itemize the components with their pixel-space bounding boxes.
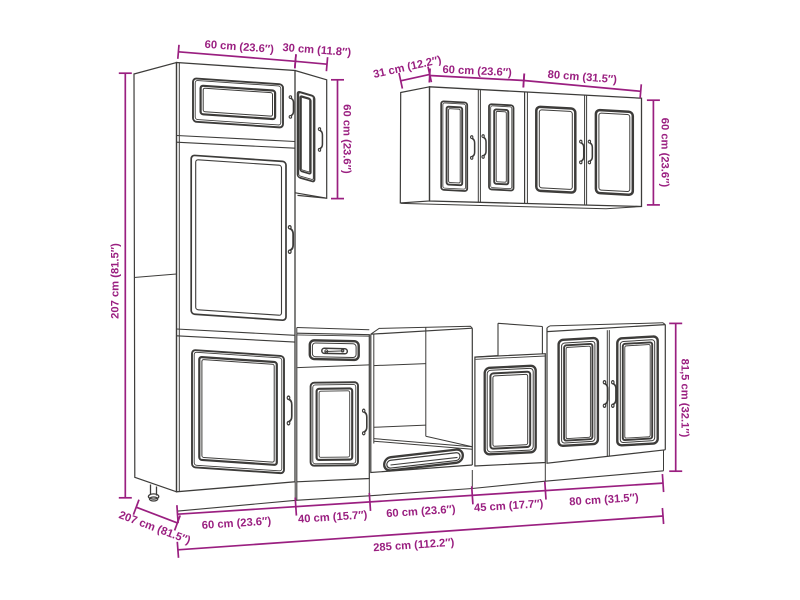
svg-text:60 cm (23.6″): 60 cm (23.6″) <box>659 118 671 188</box>
svg-text:60 cm (23.6″): 60 cm (23.6″) <box>340 104 352 174</box>
svg-text:207 cm (81.5″): 207 cm (81.5″) <box>109 243 121 319</box>
svg-text:81,5 cm (32.1″): 81,5 cm (32.1″) <box>679 359 691 438</box>
